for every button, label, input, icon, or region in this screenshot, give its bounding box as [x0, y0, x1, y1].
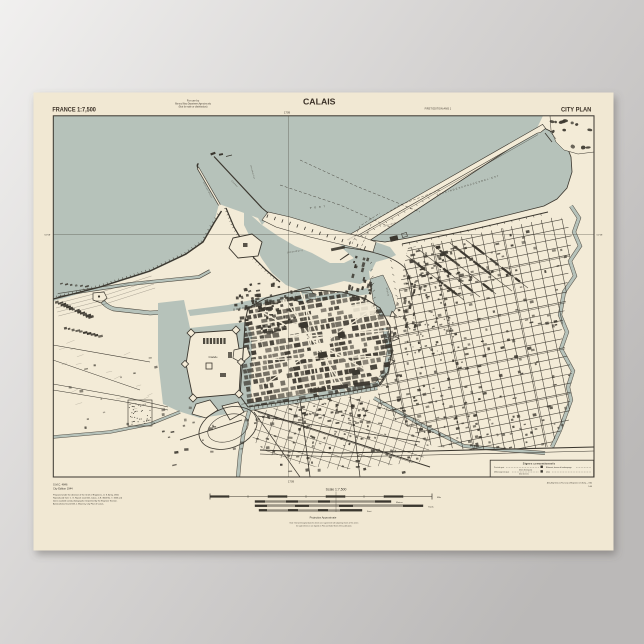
svg-text:Scale 1:7,500: Scale 1:7,500 — [326, 488, 347, 492]
svg-text:5-44: 5-44 — [588, 486, 592, 488]
svg-text:(Voie de mer): (Voie de mer) — [519, 474, 529, 476]
svg-text:Projection Approximate: Projection Approximate — [310, 516, 337, 520]
svg-text:Bâtiment, bureau d'embarquage: Bâtiment, bureau d'embarquage — [546, 466, 572, 469]
svg-text:Signes conventionnels: Signes conventionnels — [523, 461, 556, 465]
svg-text:(Not for sale or distribution): (Not for sale or distribution) — [179, 106, 208, 109]
svg-text:Yards: Yards — [428, 505, 434, 508]
svg-text:latest available aerial photog: latest available aerial photographs inte… — [53, 500, 118, 503]
svg-text:Citadelle: Citadelle — [209, 356, 219, 359]
svg-text:Feet: Feet — [367, 510, 372, 513]
svg-text:CALAIS: CALAIS — [303, 96, 336, 106]
svg-text:Prepared under the direction o: Prepared under the direction of the Chie… — [53, 494, 119, 497]
svg-text:Reproduced from: 1. G. Repor: Reproduced from: 1. G. Report 1-6-1942, … — [53, 497, 122, 500]
svg-text:City Edition 1944: City Edition 1944 — [53, 486, 73, 490]
svg-text:for rapid reference; see legen: for rapid reference; see legend on Plan … — [296, 525, 352, 528]
svg-text:Quai: Quai — [546, 472, 550, 474]
svg-text:CITY PLAN: CITY PLAN — [561, 106, 592, 113]
svg-text:1709: 1709 — [288, 480, 295, 484]
svg-text:Meters: Meters — [396, 501, 404, 504]
svg-text:51°58': 51°58' — [597, 235, 604, 237]
svg-text:FRANCE 1:7,500: FRANCE 1:7,500 — [52, 106, 96, 113]
svg-text:Aerial photos 8-12-1943, J. M: Aerial photos 8-12-1943, J. Mourrey, Cit… — [53, 503, 104, 506]
svg-text:Débarcage du quai: Débarcage du quai — [494, 472, 510, 474]
svg-text:FIRST EDITION-AMS 1: FIRST EDITION-AMS 1 — [425, 107, 452, 111]
svg-text:Pont de quai: Pont de quai — [494, 466, 505, 469]
svg-text:51°58': 51°58' — [44, 235, 51, 237]
svg-text:Note: Grid and marginal data t: Note: Grid and marginal data this sheet … — [290, 522, 359, 525]
svg-text:S.M.C. 4846: S.M.C. 4846 — [53, 483, 68, 487]
svg-text:1709: 1709 — [284, 111, 291, 115]
